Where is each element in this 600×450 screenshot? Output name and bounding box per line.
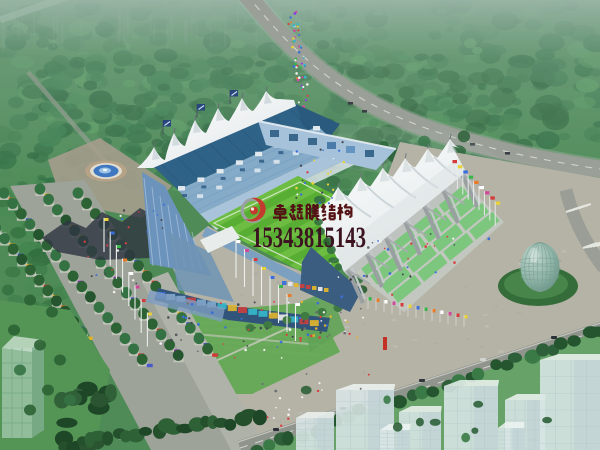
svg-text:15343815143: 15343815143: [252, 221, 366, 254]
